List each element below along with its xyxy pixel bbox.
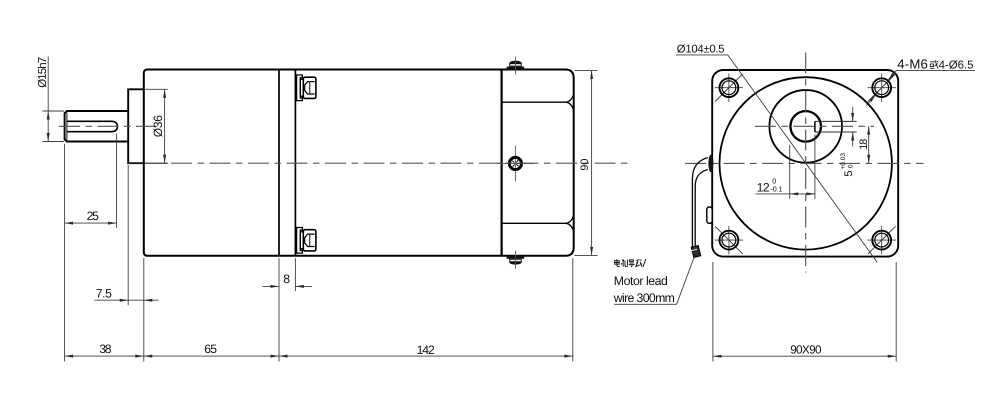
svg-text:Motor lead: Motor lead [614,274,668,288]
svg-text:0: 0 [847,164,854,168]
svg-text:18: 18 [858,139,870,150]
svg-text:Ø36: Ø36 [151,115,165,137]
svg-text:90X90: 90X90 [790,343,822,357]
svg-text:wire 300mm: wire 300mm [613,291,675,305]
svg-text:142: 142 [417,343,435,357]
svg-text:65: 65 [204,342,217,356]
svg-text:Ø15h7: Ø15h7 [37,57,49,88]
svg-text:7.5: 7.5 [96,286,112,300]
svg-text:90: 90 [579,159,591,171]
svg-text:5: 5 [843,170,855,176]
svg-text:Ø104±0.5: Ø104±0.5 [677,44,725,56]
svg-text:+0.03: +0.03 [840,153,847,170]
svg-text:4-M6: 4-M6 [897,57,928,72]
svg-text:4-Ø6.5: 4-Ø6.5 [939,60,974,72]
svg-text:38: 38 [99,342,112,356]
svg-text:12: 12 [757,180,770,194]
svg-text:25: 25 [87,209,99,223]
svg-text:-0.1: -0.1 [770,185,782,194]
svg-text:8: 8 [283,272,290,286]
